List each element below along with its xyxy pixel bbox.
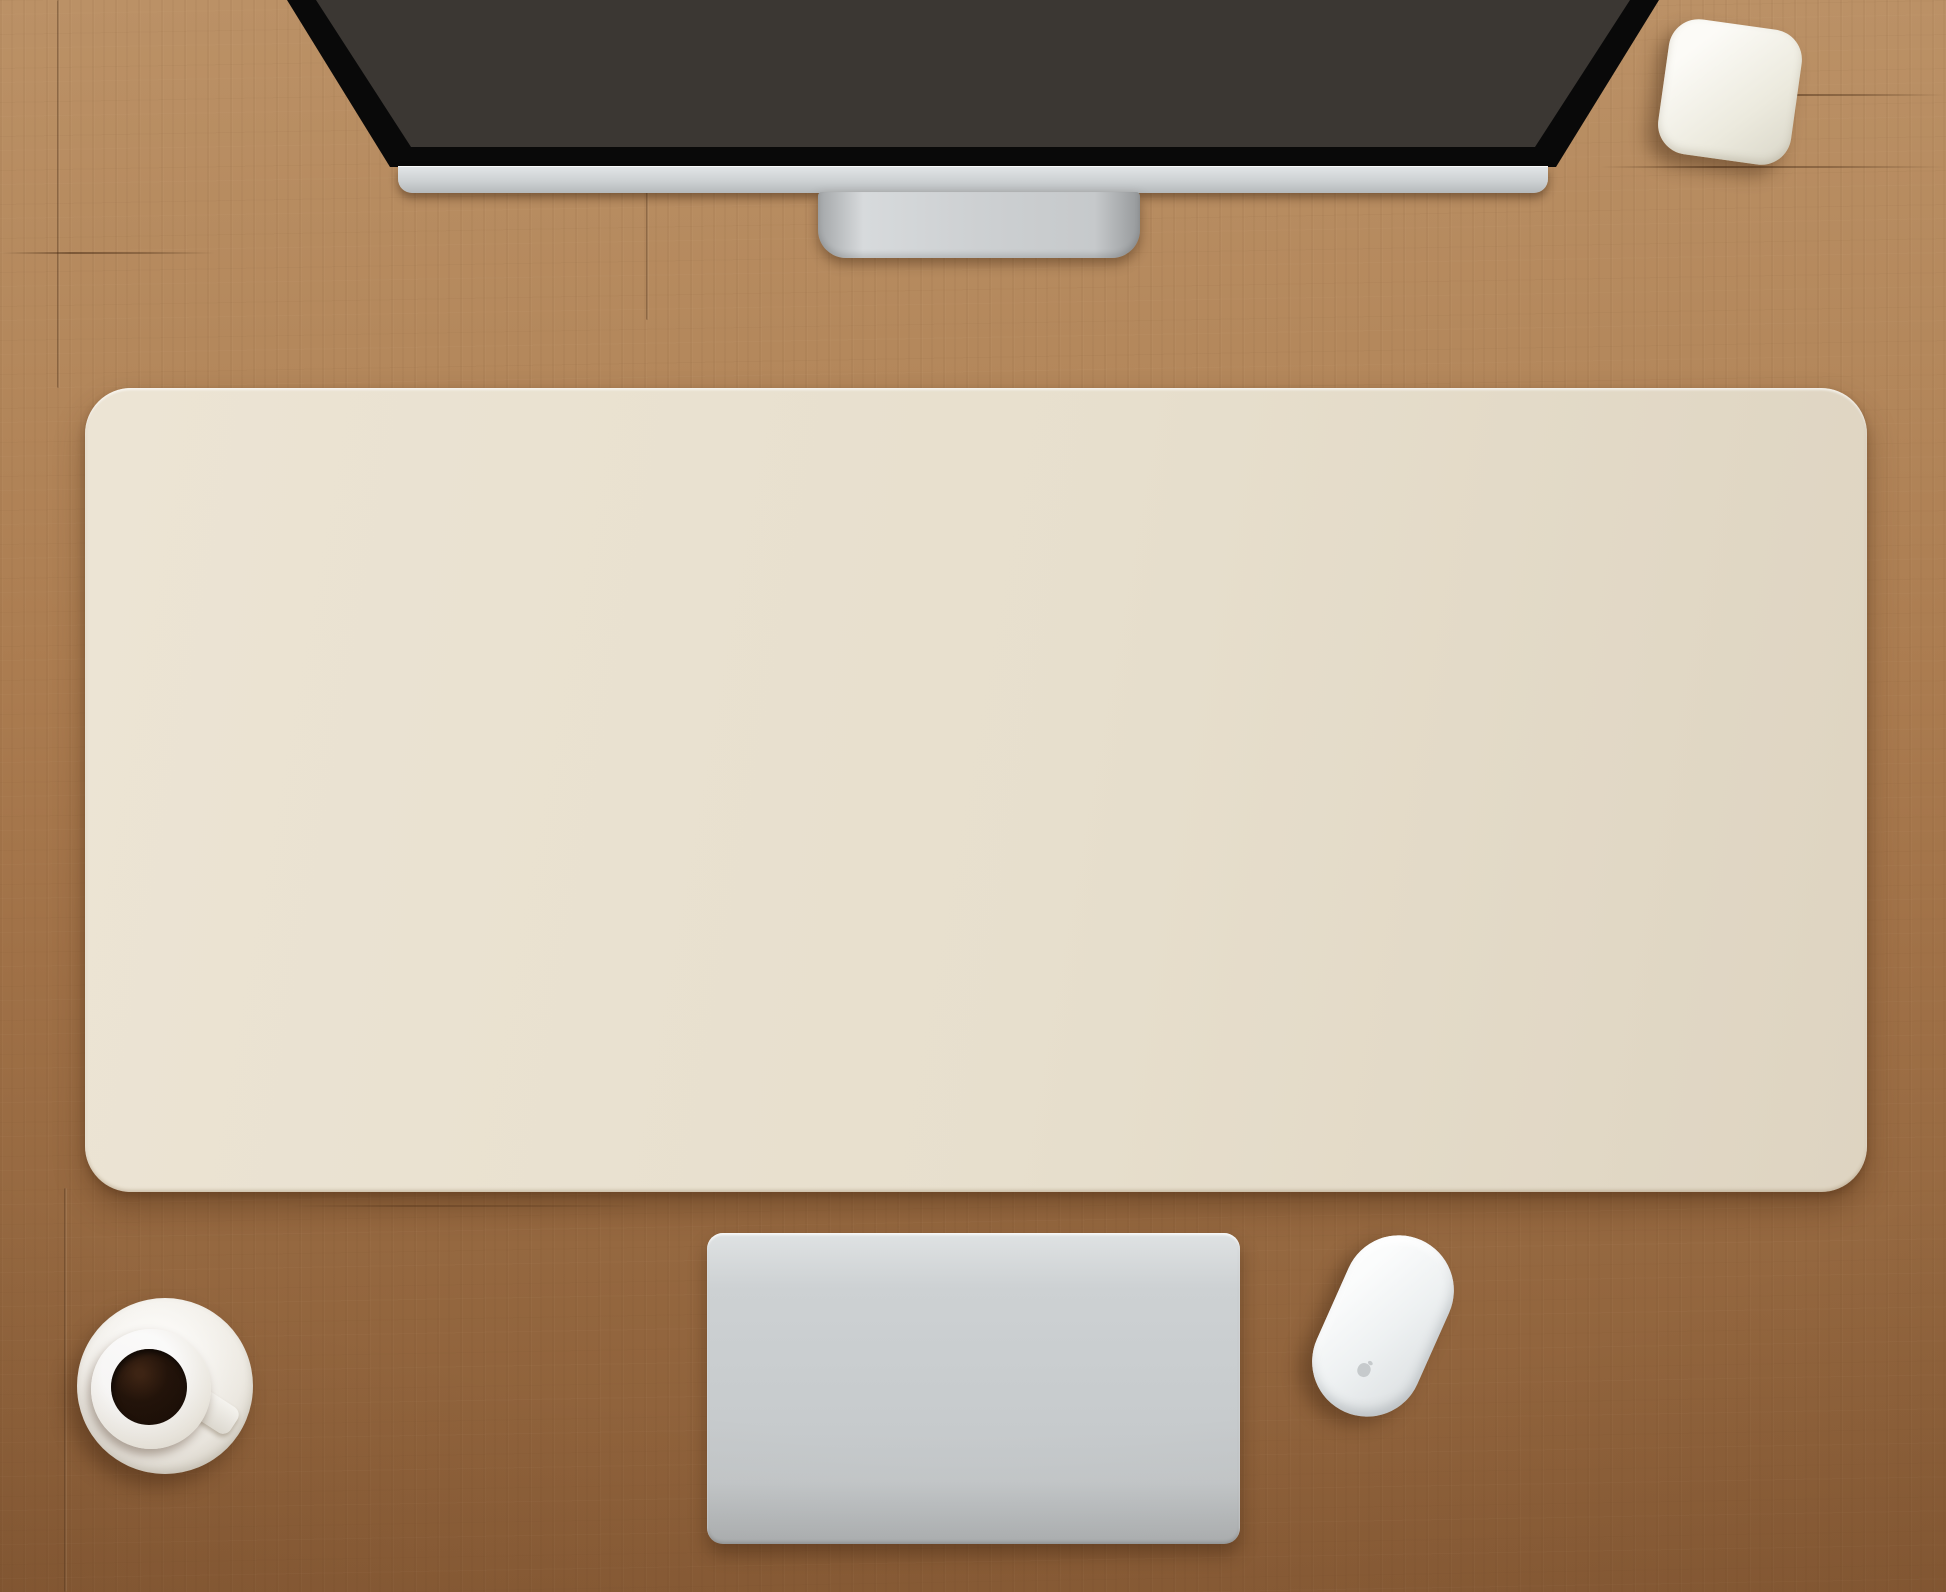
spiral-notebook [1740,1230,1946,1592]
monitor-chin [398,166,1548,193]
apple-logo-icon [1355,1361,1373,1379]
apple-wireless-keyboard [707,1233,1240,1544]
desk-mat-moon-phases [85,388,1867,1192]
wood-grain-crack [290,1205,650,1207]
wire-pyramid-decor [0,0,280,275]
succulent-plant [1622,0,1844,208]
coffee-drink [111,1349,187,1425]
monitor-stand [818,192,1140,258]
product-dimensions-label [0,296,1946,348]
desk-mat-artwork [85,388,1867,1192]
wood-plank-seam [64,1188,67,1592]
product-photo-desk-scene [0,0,1946,1592]
